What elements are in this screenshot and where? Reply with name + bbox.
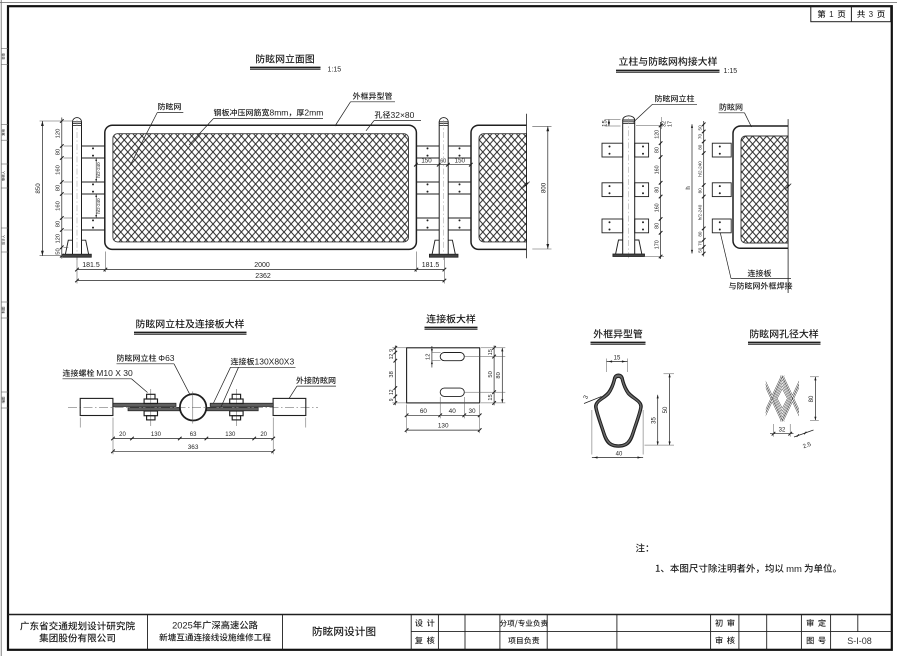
svg-text:63: 63 — [190, 432, 197, 438]
svg-text:12: 12 — [426, 354, 432, 360]
svg-text:15: 15 — [488, 394, 494, 400]
svg-text:12: 12 — [389, 389, 395, 395]
svg-text:40: 40 — [616, 451, 623, 457]
svg-text:80: 80 — [698, 231, 703, 237]
svg-text:9: 9 — [389, 398, 395, 401]
svg-text:120: 120 — [654, 130, 660, 139]
svg-text:170: 170 — [654, 240, 660, 249]
svg-text:17: 17 — [668, 121, 674, 127]
svg-text:70: 70 — [698, 240, 703, 246]
svg-text:80: 80 — [698, 144, 703, 150]
svg-text:12: 12 — [389, 354, 395, 360]
svg-text:h/2-240: h/2-240 — [96, 162, 101, 178]
svg-text:3: 3 — [869, 10, 874, 19]
svg-text:181.5: 181.5 — [422, 262, 440, 269]
svg-text:181.5: 181.5 — [82, 262, 100, 269]
svg-text:160: 160 — [56, 165, 62, 175]
svg-text:80: 80 — [654, 223, 660, 229]
svg-text:80: 80 — [56, 221, 62, 227]
svg-text:50: 50 — [698, 247, 703, 253]
svg-text:850: 850 — [35, 183, 42, 194]
svg-text:15: 15 — [614, 356, 621, 362]
svg-text:80: 80 — [496, 372, 502, 378]
svg-text:S-I-08: S-I-08 — [847, 636, 872, 646]
svg-text:80: 80 — [809, 395, 815, 402]
svg-text:160: 160 — [654, 165, 660, 174]
svg-text:150: 150 — [455, 157, 466, 164]
svg-text:130: 130 — [225, 432, 236, 438]
svg-text:32×80: 32×80 — [391, 110, 415, 120]
svg-text:50: 50 — [56, 248, 62, 254]
svg-text:130: 130 — [438, 423, 449, 430]
svg-text:120: 120 — [56, 129, 62, 139]
svg-text:9: 9 — [389, 349, 395, 352]
svg-text:20: 20 — [260, 432, 267, 438]
svg-text:h: h — [686, 186, 692, 189]
svg-text:15: 15 — [603, 120, 609, 127]
svg-text:800: 800 — [540, 182, 547, 193]
svg-text:1:15: 1:15 — [328, 67, 342, 74]
svg-text:h/2-240: h/2-240 — [698, 204, 703, 220]
svg-text:80: 80 — [698, 188, 703, 194]
svg-text:50: 50 — [488, 371, 494, 377]
svg-text:20: 20 — [119, 432, 126, 438]
svg-text:80: 80 — [654, 187, 660, 193]
svg-text:50: 50 — [698, 125, 703, 131]
svg-text:120: 120 — [56, 234, 62, 244]
svg-text:60: 60 — [420, 408, 428, 415]
svg-text:2000: 2000 — [254, 262, 270, 269]
svg-text:32: 32 — [779, 428, 786, 434]
svg-text:35: 35 — [651, 417, 657, 424]
svg-text:70: 70 — [698, 134, 703, 140]
svg-text:130: 130 — [151, 432, 162, 438]
svg-text:1:15: 1:15 — [724, 68, 738, 75]
svg-text:2025: 2025 — [172, 621, 193, 631]
svg-text:M10 X 30: M10 X 30 — [96, 368, 133, 378]
svg-text:38: 38 — [389, 371, 395, 377]
svg-text:8mm: 8mm — [270, 108, 289, 118]
svg-text:130X80X3: 130X80X3 — [255, 357, 295, 367]
svg-text:2mm: 2mm — [304, 108, 323, 118]
svg-text:h/2-240: h/2-240 — [96, 198, 101, 214]
svg-text:40: 40 — [449, 408, 457, 415]
svg-text:1: 1 — [829, 10, 834, 19]
svg-text:363: 363 — [188, 444, 199, 451]
svg-text:15: 15 — [488, 349, 494, 355]
svg-text:150: 150 — [421, 157, 432, 164]
svg-text:Φ63: Φ63 — [158, 353, 175, 363]
svg-text:160: 160 — [56, 201, 62, 211]
svg-text:80: 80 — [654, 147, 660, 153]
svg-text:50: 50 — [663, 406, 669, 413]
svg-text:60: 60 — [440, 158, 446, 164]
svg-text:mm: mm — [786, 564, 802, 575]
svg-text:30: 30 — [468, 408, 476, 415]
svg-text:80: 80 — [56, 185, 62, 191]
svg-text:h/2-240: h/2-240 — [698, 161, 703, 177]
svg-text:160: 160 — [654, 203, 660, 212]
svg-text:2362: 2362 — [255, 273, 271, 280]
svg-text:80: 80 — [56, 149, 62, 155]
